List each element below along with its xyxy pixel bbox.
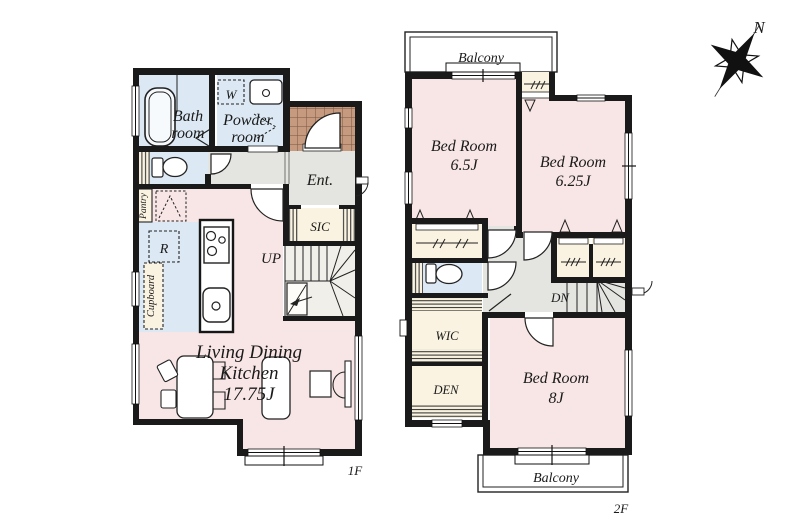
chair: [161, 390, 176, 408]
floorplan-canvas: Bath room W Powder room Ent. SIC UP Pant…: [0, 0, 800, 531]
wic-shelf-top: [412, 298, 482, 311]
toilet-2f-icon: [426, 264, 462, 284]
bath-room-label-2: room: [171, 125, 204, 142]
toilet-2f-shelf: [412, 262, 423, 294]
fridge-label: R: [159, 242, 169, 257]
powder-sink-icon: [250, 80, 282, 104]
floor-plan-2f: Balcony Bed Room 6.5J Bed Room 6.25J WIC…: [400, 32, 652, 516]
powder-room-label-1: Powder: [222, 112, 274, 129]
bedroom-625-size: 6.25J: [555, 173, 591, 190]
bedroom-8-label: Bed Room: [523, 370, 589, 387]
wic-shelf-bottom: [412, 349, 482, 362]
floor-plan-1f: Bath room W Powder room Ent. SIC UP Pant…: [132, 68, 368, 478]
sic-shelf-right: [341, 208, 355, 241]
compass-rose: N: [688, 9, 785, 113]
balcony-bottom-label: Balcony: [533, 471, 580, 486]
dining-table: [177, 356, 213, 418]
bath-room-label-1: Bath: [173, 108, 203, 125]
pantry-label: Pantry: [139, 192, 149, 220]
tv-board: [345, 361, 351, 407]
bedroom-65-floor: [412, 79, 516, 232]
kitchen-counter: [200, 220, 233, 332]
sink-icon: [203, 288, 230, 322]
powder-room-label-2: room: [231, 129, 264, 146]
bedroom-65-size: 6.5J: [450, 157, 478, 174]
dn-label: DN: [550, 290, 570, 305]
up-label: UP: [261, 251, 281, 267]
compass-north-label: N: [752, 18, 766, 37]
washer-label: W: [226, 87, 238, 102]
bedroom-625-label: Bed Room: [540, 154, 606, 171]
floor2-label: 2F: [614, 501, 630, 516]
powder-sliding-door: [248, 146, 278, 152]
compass-star-major: [693, 17, 781, 106]
ldk-label-2: Kitchen: [218, 363, 278, 384]
bedroom-8-size: 8J: [548, 390, 564, 407]
toilet-1f-shelf: [139, 152, 150, 184]
bedroom-65-label: Bed Room: [431, 138, 497, 155]
balcony-top-label: Balcony: [458, 51, 505, 66]
ldk-label-3: 17.75J: [223, 384, 276, 405]
toilet-1f-icon: [152, 158, 187, 178]
floorplan-svg: Bath room W Powder room Ent. SIC UP Pant…: [0, 0, 800, 531]
stair-landing-window-door: [632, 281, 652, 295]
ldk-label-1: Living Dining: [195, 342, 302, 363]
sic-label: SIC: [310, 219, 330, 234]
armchair: [310, 371, 331, 397]
floor1-label: 1F: [348, 463, 364, 478]
entrance-label: Ent.: [306, 172, 333, 189]
den-shelf: [412, 404, 482, 418]
wic-window: [400, 320, 407, 336]
cupboard-label: Cupboard: [146, 274, 157, 317]
wic-label: WIC: [436, 329, 460, 343]
den-label: DEN: [433, 383, 460, 397]
